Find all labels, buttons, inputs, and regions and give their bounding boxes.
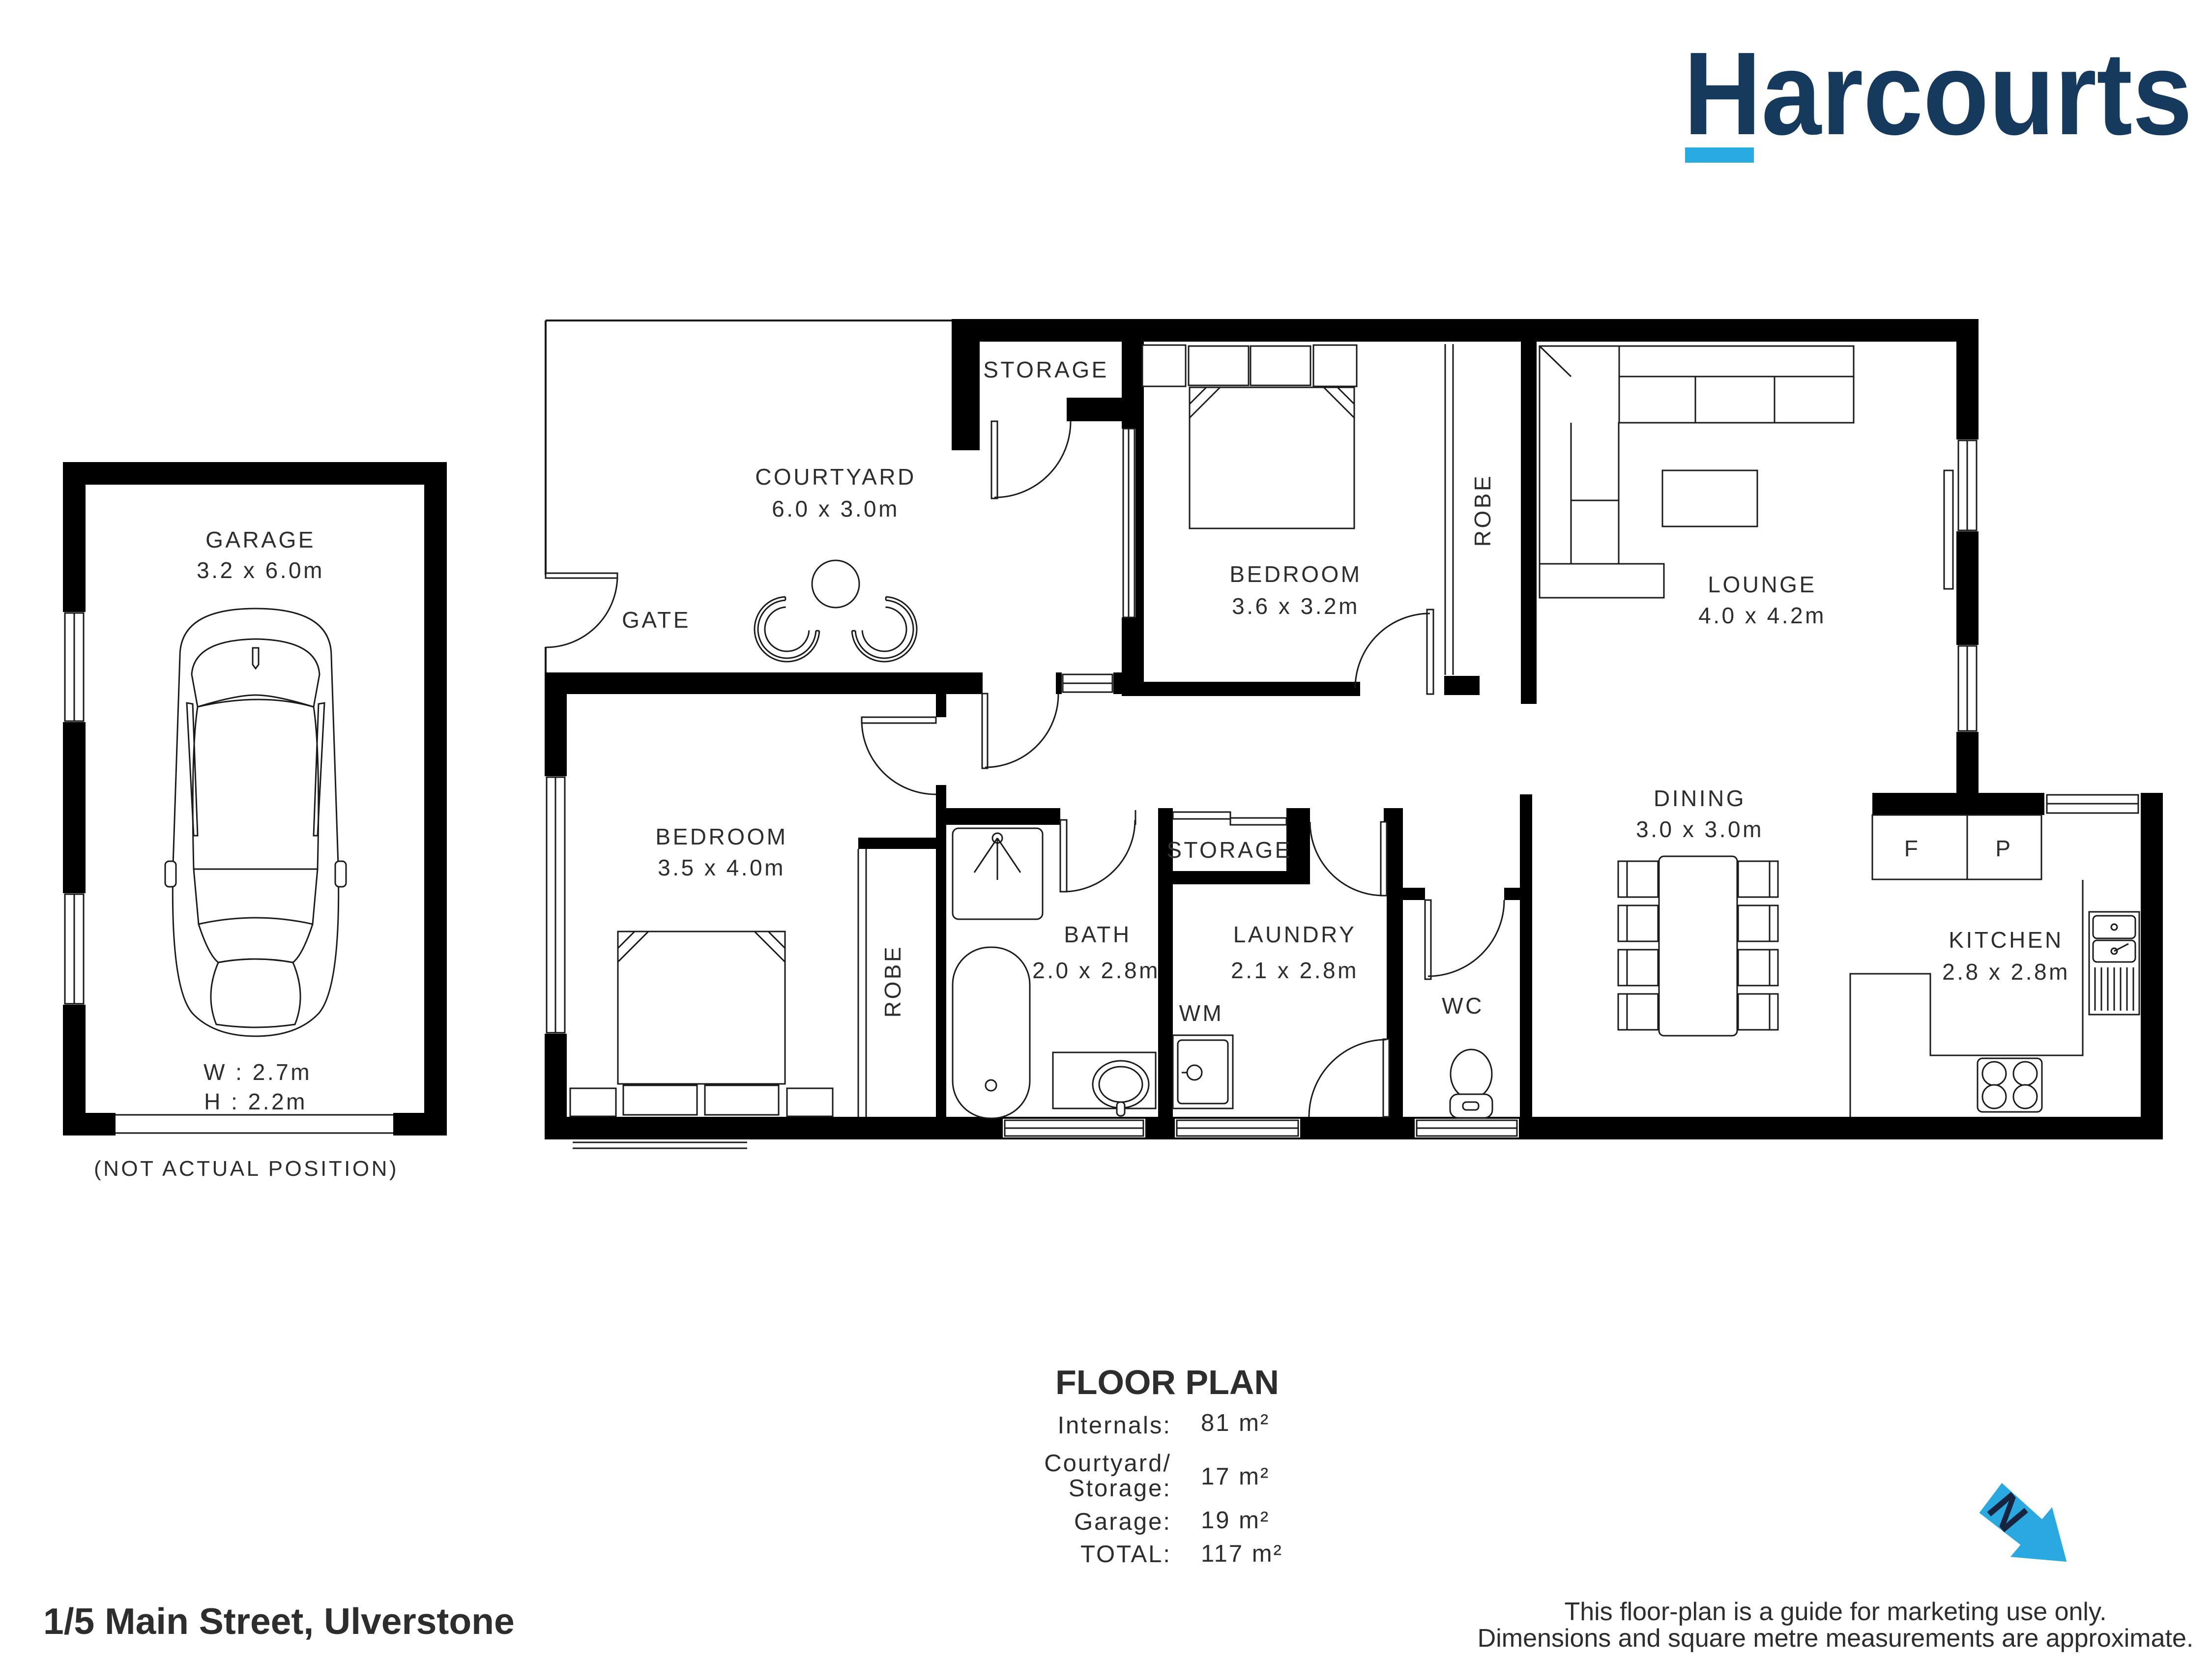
svg-text:W : 2.7m: W : 2.7m <box>204 1059 312 1085</box>
svg-text:2.0 x 2.8m: 2.0 x 2.8m <box>1032 958 1160 983</box>
svg-text:ROBE: ROBE <box>880 945 905 1018</box>
svg-text:17 m²: 17 m² <box>1201 1463 1270 1490</box>
svg-text:BEDROOM: BEDROOM <box>655 824 787 849</box>
svg-text:4.0 x 4.2m: 4.0 x 4.2m <box>1698 603 1826 628</box>
svg-text:3.2 x 6.0m: 3.2 x 6.0m <box>197 557 324 583</box>
svg-text:STORAGE: STORAGE <box>1166 837 1292 863</box>
svg-text:Harcourts: Harcourts <box>1684 28 2192 159</box>
svg-text:2.8 x 2.8m: 2.8 x 2.8m <box>1942 959 2070 985</box>
svg-text:Garage:: Garage: <box>1074 1509 1171 1535</box>
svg-text:Internals:: Internals: <box>1057 1412 1171 1439</box>
svg-text:This floor-plan is a guide for: This floor-plan is a guide for marketing… <box>1564 1598 2106 1626</box>
svg-text:FLOOR PLAN: FLOOR PLAN <box>1055 1363 1279 1401</box>
svg-text:(NOT ACTUAL POSITION): (NOT ACTUAL POSITION) <box>94 1157 399 1181</box>
svg-text:3.0 x 3.0m: 3.0 x 3.0m <box>1636 816 1764 842</box>
svg-text:GARAGE: GARAGE <box>205 527 316 553</box>
svg-text:2.1 x 2.8m: 2.1 x 2.8m <box>1231 958 1359 983</box>
svg-text:LOUNGE: LOUNGE <box>1708 572 1816 597</box>
svg-text:COURTYARD: COURTYARD <box>755 464 916 490</box>
svg-text:117 m²: 117 m² <box>1201 1541 1283 1567</box>
svg-text:TOTAL:: TOTAL: <box>1080 1541 1171 1568</box>
svg-text:1/5 Main Street, Ulverstone: 1/5 Main Street, Ulverstone <box>43 1601 515 1642</box>
svg-text:H : 2.2m: H : 2.2m <box>204 1089 307 1114</box>
svg-text:DINING: DINING <box>1654 786 1746 811</box>
svg-text:STORAGE: STORAGE <box>983 357 1109 382</box>
svg-text:LAUNDRY: LAUNDRY <box>1233 922 1357 947</box>
svg-text:BATH: BATH <box>1064 922 1131 947</box>
svg-text:GATE: GATE <box>622 607 691 633</box>
svg-text:6.0 x 3.0m: 6.0 x 3.0m <box>772 496 900 522</box>
svg-text:Courtyard/: Courtyard/ <box>1044 1450 1171 1477</box>
svg-text:3.5 x 4.0m: 3.5 x 4.0m <box>658 855 786 880</box>
svg-text:P: P <box>1995 836 2012 861</box>
svg-text:Storage:: Storage: <box>1069 1475 1171 1502</box>
svg-text:BEDROOM: BEDROOM <box>1229 561 1362 587</box>
svg-text:3.6 x 3.2m: 3.6 x 3.2m <box>1232 593 1360 619</box>
svg-text:KITCHEN: KITCHEN <box>1949 927 2063 953</box>
svg-text:ROBE: ROBE <box>1470 474 1495 547</box>
svg-text:WM: WM <box>1179 1000 1224 1026</box>
svg-text:19 m²: 19 m² <box>1201 1507 1270 1534</box>
svg-text:WC: WC <box>1442 993 1484 1019</box>
svg-text:Dimensions and square metre me: Dimensions and square metre measurements… <box>1478 1624 2194 1653</box>
svg-text:81 m²: 81 m² <box>1201 1410 1270 1436</box>
svg-text:F: F <box>1904 836 1921 861</box>
